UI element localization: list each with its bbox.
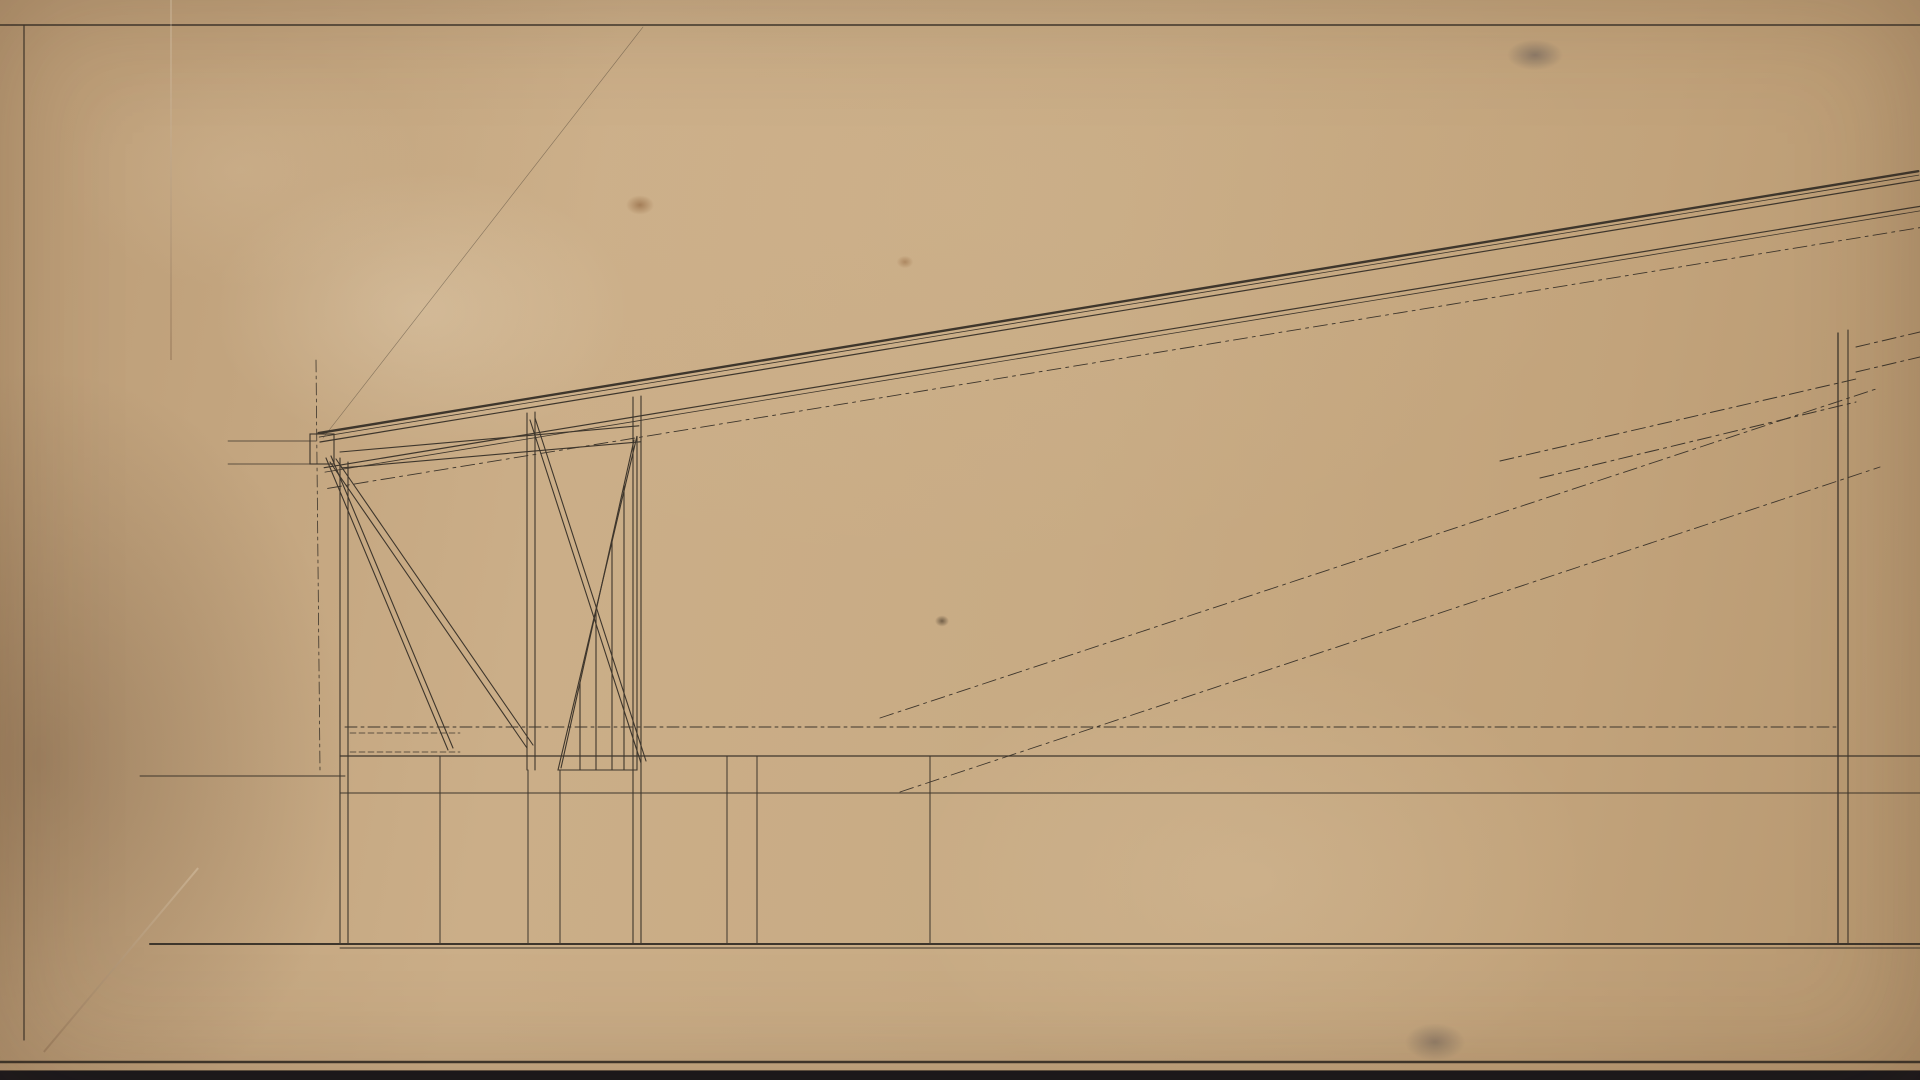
roof-beam	[319, 171, 1920, 488]
scan-edge	[0, 1071, 1920, 1080]
left-truss	[228, 396, 646, 944]
sheet-border	[0, 25, 1920, 1071]
drawing-sheet	[0, 0, 1920, 1080]
right-roof-lines	[316, 27, 1920, 792]
section-drawing	[0, 0, 1920, 1080]
